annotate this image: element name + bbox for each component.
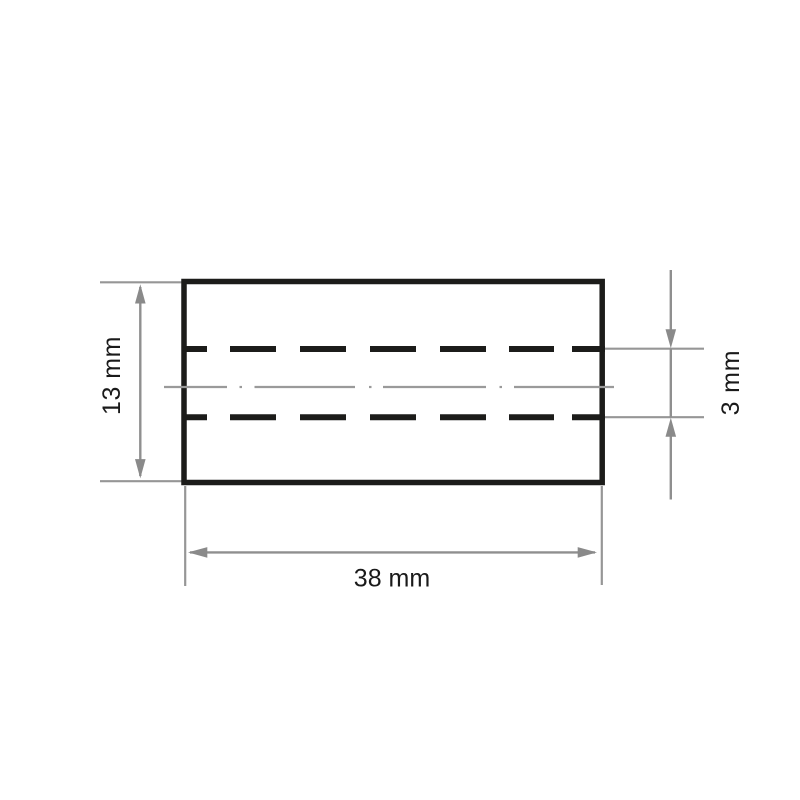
- svg-text:13 mm: 13 mm: [98, 336, 126, 415]
- svg-text:38 mm: 38 mm: [354, 565, 430, 593]
- svg-text:3 mm: 3 mm: [717, 350, 745, 416]
